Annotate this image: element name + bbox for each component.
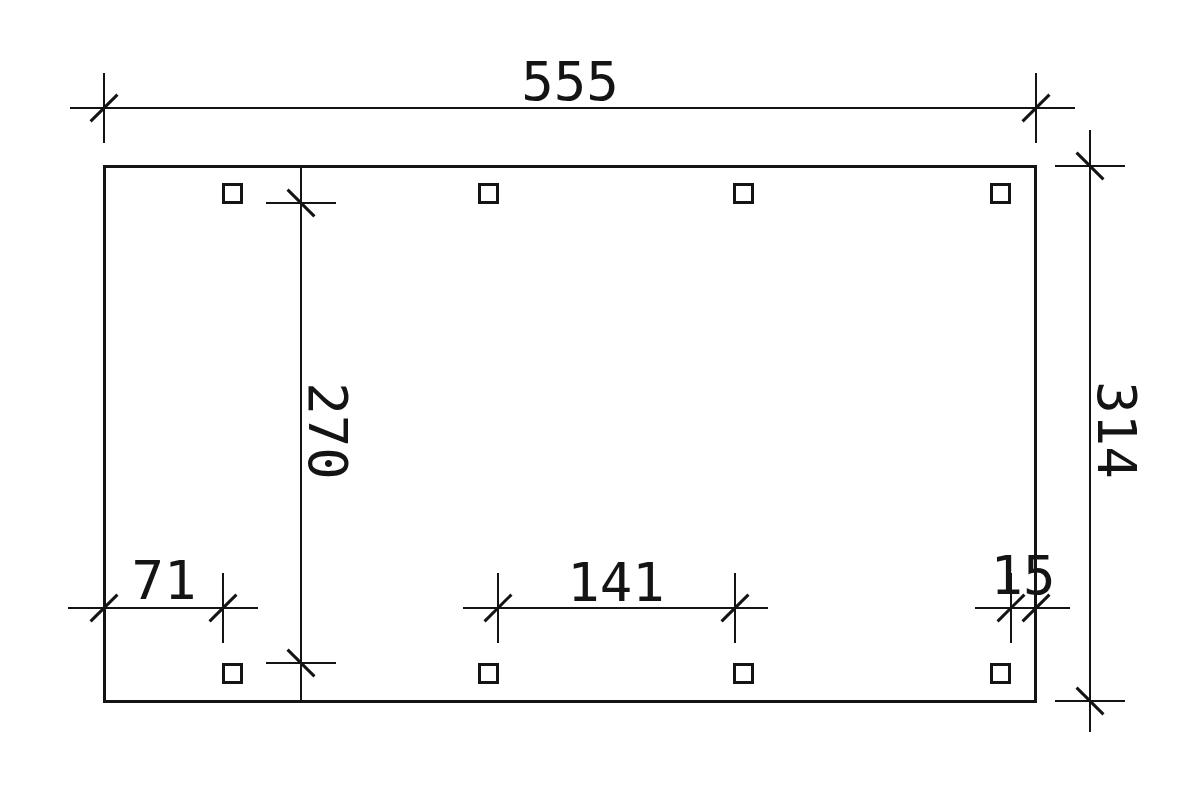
dim-clear-depth-label: 270	[300, 382, 354, 480]
plan-drawing-canvas: 555 314 270 71 141 15	[0, 0, 1200, 800]
post-marker-top-3	[733, 183, 754, 204]
post-marker-bottom-2	[478, 663, 499, 684]
post-marker-top-4	[990, 183, 1011, 204]
dim-left-offset-label: 71	[131, 554, 196, 608]
dim-post-spacing-label: 141	[567, 556, 665, 610]
post-marker-top-1	[222, 183, 243, 204]
building-outline	[103, 165, 1037, 703]
dim-right-offset-line	[975, 607, 1070, 609]
dim-total-depth-label: 314	[1089, 381, 1143, 479]
post-marker-bottom-3	[733, 663, 754, 684]
dim-right-offset-label: 15	[990, 549, 1055, 603]
dim-total-width-label: 555	[521, 55, 619, 109]
post-marker-bottom-1	[222, 663, 243, 684]
post-marker-top-2	[478, 183, 499, 204]
post-marker-bottom-4	[990, 663, 1011, 684]
